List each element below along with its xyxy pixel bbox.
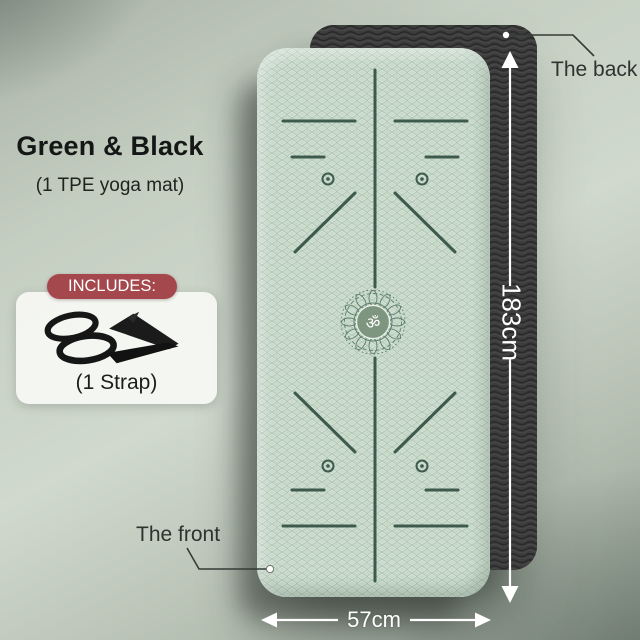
strap-icon xyxy=(36,306,186,368)
front-leader-line xyxy=(187,548,267,569)
green-mat-diamond-texture xyxy=(257,48,490,597)
product-subtitle: (1 TPE yoga mat) xyxy=(6,175,214,197)
product-title: Green & Black xyxy=(6,131,214,162)
arrow-down-icon xyxy=(502,586,519,603)
includes-badge: INCLUDES: xyxy=(47,274,177,299)
includes-card: (1 Strap) xyxy=(16,292,217,404)
length-dimension-text: 183cm xyxy=(496,283,527,361)
arrow-left-icon xyxy=(261,613,277,628)
green-mat-front xyxy=(257,48,490,597)
strap-caption: (1 Strap) xyxy=(16,371,217,395)
width-dimension-text: 57cm xyxy=(347,607,401,633)
product-showcase: ॐ Green & Black (1 TPE yoga mat) xyxy=(0,0,640,640)
front-label: The front xyxy=(136,523,220,547)
back-label: The back xyxy=(551,58,637,82)
arrow-right-icon xyxy=(475,613,491,628)
